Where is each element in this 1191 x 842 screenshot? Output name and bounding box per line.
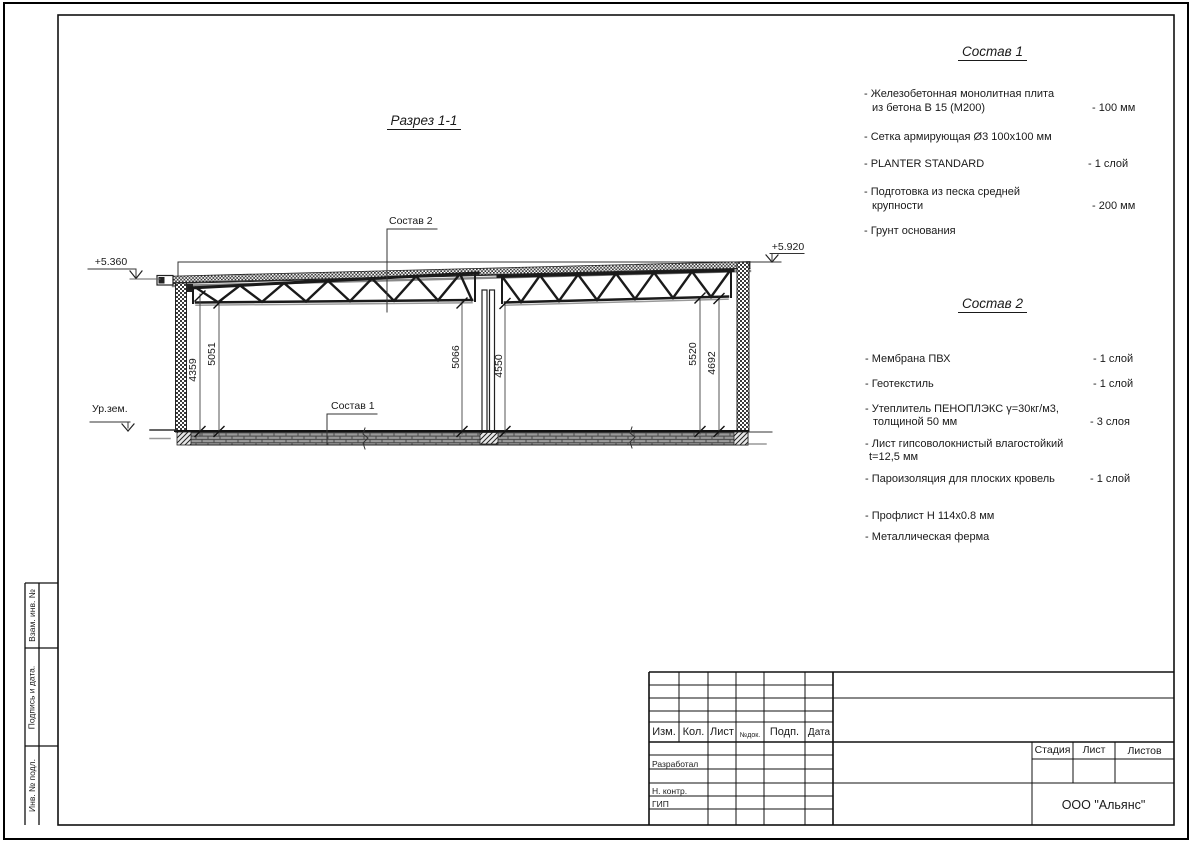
- dim-right-wall: 4692: [706, 338, 718, 388]
- list-item: t=12,5 мм: [869, 451, 918, 464]
- list-item: крупности: [872, 200, 923, 213]
- tb-col-podp: Подп.: [764, 726, 805, 739]
- list-item-value: - 100 мм: [1092, 102, 1135, 115]
- list-item: - Железобетонная монолитная плита: [864, 88, 1054, 101]
- sidebar-vzam-inv: Взам. инв. №: [26, 583, 39, 648]
- section-view-title: Разрез 1-1: [374, 114, 474, 130]
- tb-role-gip: ГИП: [652, 798, 669, 811]
- tb-stage: Стадия: [1032, 744, 1073, 757]
- sostav1-leader-label: Состав 1: [331, 400, 375, 413]
- elevation-right-label: +5.920: [770, 241, 806, 254]
- elevation-left-label: +5.360: [90, 256, 132, 269]
- tb-role-ncontrol: Н. контр.: [652, 785, 687, 798]
- list-item: - Геотекстиль: [865, 378, 934, 391]
- list-item: - Сетка армирующая Ø3 100х100 мм: [864, 131, 1052, 144]
- sheet-frame: [4, 3, 1188, 839]
- list-item: - Пароизоляция для плоских кровель: [865, 473, 1055, 486]
- tb-sheet: Лист: [1073, 744, 1115, 757]
- list-item-value: - 1 слой: [1093, 353, 1133, 366]
- sostav2-title: Состав 2: [930, 297, 1055, 313]
- sostav2-leader-label: Состав 2: [389, 215, 433, 228]
- list-item-value: - 1 слой: [1093, 378, 1133, 391]
- list-item: из бетона В 15 (М200): [872, 102, 985, 115]
- sostav1-title: Состав 1: [930, 45, 1055, 61]
- section-drawing: [0, 0, 1191, 842]
- tb-organization: ООО "Альянс": [1033, 784, 1174, 825]
- list-item-value: - 1 слой: [1090, 473, 1130, 486]
- list-item: - Грунт основания: [864, 225, 956, 238]
- list-item: - Мембрана ПВХ: [865, 353, 950, 366]
- sidebar-podpis-data: Подпись и дата.: [26, 648, 39, 746]
- ground-level-label: Ур.зем.: [92, 403, 128, 416]
- tb-role-developed: Разработал: [652, 758, 698, 771]
- drawing-sheet: Разрез 1-1 Состав 2 Состав 1 +5.360 +5.9…: [0, 0, 1191, 842]
- list-item: - Лист гипсоволокнистый влагостойкий: [865, 438, 1063, 451]
- list-item-value: - 200 мм: [1092, 200, 1135, 213]
- dim-bay2-left: 4550: [493, 341, 505, 391]
- dim-left-truss: 5051: [206, 329, 218, 379]
- dim-left-wall: 4359: [187, 345, 199, 395]
- dim-bay1-right: 5066: [450, 332, 462, 382]
- list-item: - Подготовка из песка средней: [864, 186, 1020, 199]
- dim-bay2-right: 5520: [687, 329, 699, 379]
- list-item: - Утеплитель ПЕНОПЛЭКС γ=30кг/м3,: [865, 403, 1059, 416]
- tb-sheets: Листов: [1115, 745, 1174, 758]
- tb-col-kol: Кол.: [679, 726, 708, 739]
- list-item: толщиной 50 мм: [873, 416, 957, 429]
- list-item-value: - 3 слоя: [1090, 416, 1130, 429]
- list-item: - Металлическая ферма: [865, 531, 989, 544]
- list-item: - Профлист Н 114х0.8 мм: [865, 510, 994, 523]
- list-item-value: - 1 слой: [1088, 158, 1128, 171]
- tb-col-ndok: №док.: [736, 729, 764, 742]
- tb-col-data: Дата: [805, 726, 833, 739]
- tb-col-izm: Изм.: [649, 726, 679, 739]
- tb-col-list: Лист: [708, 726, 736, 739]
- sidebar-inv-podl: Инв. № подл.: [26, 746, 39, 825]
- list-item: - PLANTER STANDARD: [864, 158, 984, 171]
